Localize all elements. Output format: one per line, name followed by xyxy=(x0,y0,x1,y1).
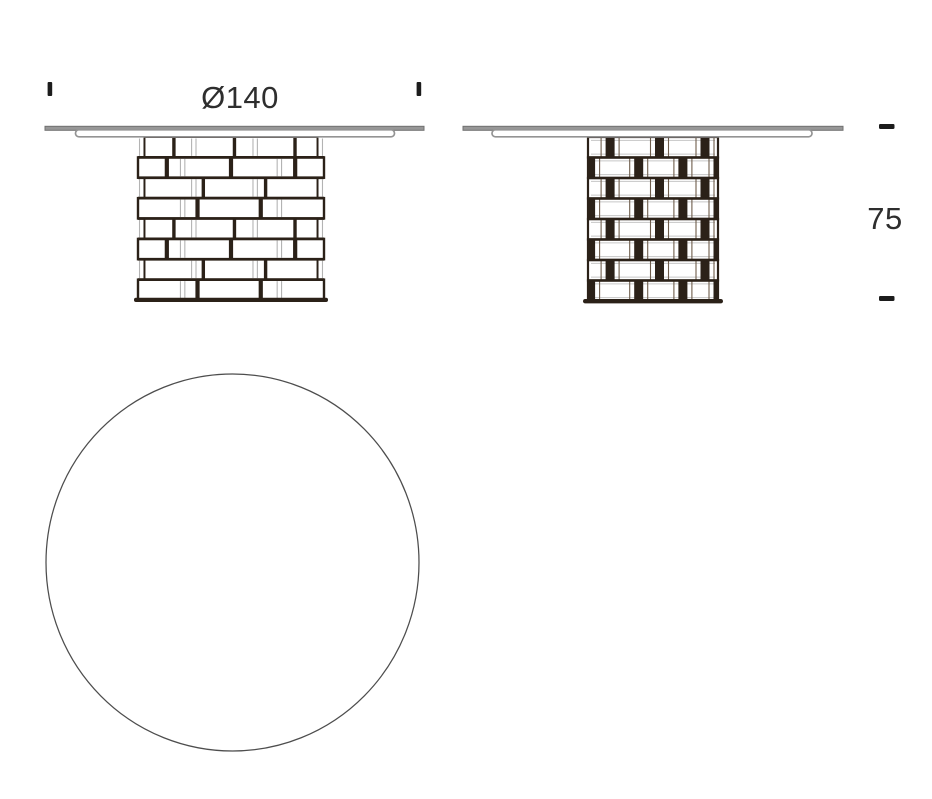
weave-bar xyxy=(634,199,643,220)
top-view-circle xyxy=(46,374,419,751)
weave-bar xyxy=(606,137,615,158)
weave-bar xyxy=(655,260,664,281)
height-label: 75 xyxy=(867,201,902,236)
weave-bar xyxy=(701,260,710,281)
weave-bar xyxy=(606,219,615,240)
diameter-tick-left xyxy=(48,82,53,96)
brick-course-face xyxy=(145,178,318,198)
height-tick-top xyxy=(879,124,895,129)
pedestal-base xyxy=(583,299,723,303)
front-tabletop xyxy=(45,126,424,137)
weave-bar xyxy=(678,281,687,302)
diameter-tick-right xyxy=(417,82,422,96)
tabletop-lip xyxy=(492,130,812,137)
weave-bar xyxy=(655,219,664,240)
tabletop-lip xyxy=(76,130,395,137)
weave-bar xyxy=(701,137,710,158)
weave-bar xyxy=(678,240,687,261)
height-tick-bottom xyxy=(879,296,895,301)
drawing-svg: Ø140 75 xyxy=(0,0,932,799)
weave-bar xyxy=(701,219,710,240)
side-tabletop xyxy=(463,126,843,137)
brick-course-face xyxy=(145,219,318,239)
weave-bar xyxy=(655,137,664,158)
height-dimension: 75 xyxy=(867,124,902,301)
weave-bar xyxy=(634,281,643,302)
side-pedestal-weave-pattern xyxy=(583,137,723,303)
brick-course-face xyxy=(145,137,318,157)
technical-drawing-canvas: Ø140 75 xyxy=(0,0,932,799)
weave-bar xyxy=(655,178,664,199)
weave-bar xyxy=(634,158,643,179)
weave-bar xyxy=(678,199,687,220)
front-view: Ø140 xyxy=(45,80,424,302)
weave-bar xyxy=(606,260,615,281)
diameter-label: Ø140 xyxy=(201,80,279,115)
weave-bar xyxy=(606,178,615,199)
weave-bar xyxy=(678,158,687,179)
brick-course-face xyxy=(138,198,324,218)
weave-bar xyxy=(634,240,643,261)
brick-course-face xyxy=(145,259,318,279)
front-pedestal-brick-pattern xyxy=(134,137,328,302)
brick-course-face xyxy=(138,280,324,300)
pedestal-base xyxy=(134,298,328,302)
weave-bar xyxy=(701,178,710,199)
side-view xyxy=(463,126,843,303)
